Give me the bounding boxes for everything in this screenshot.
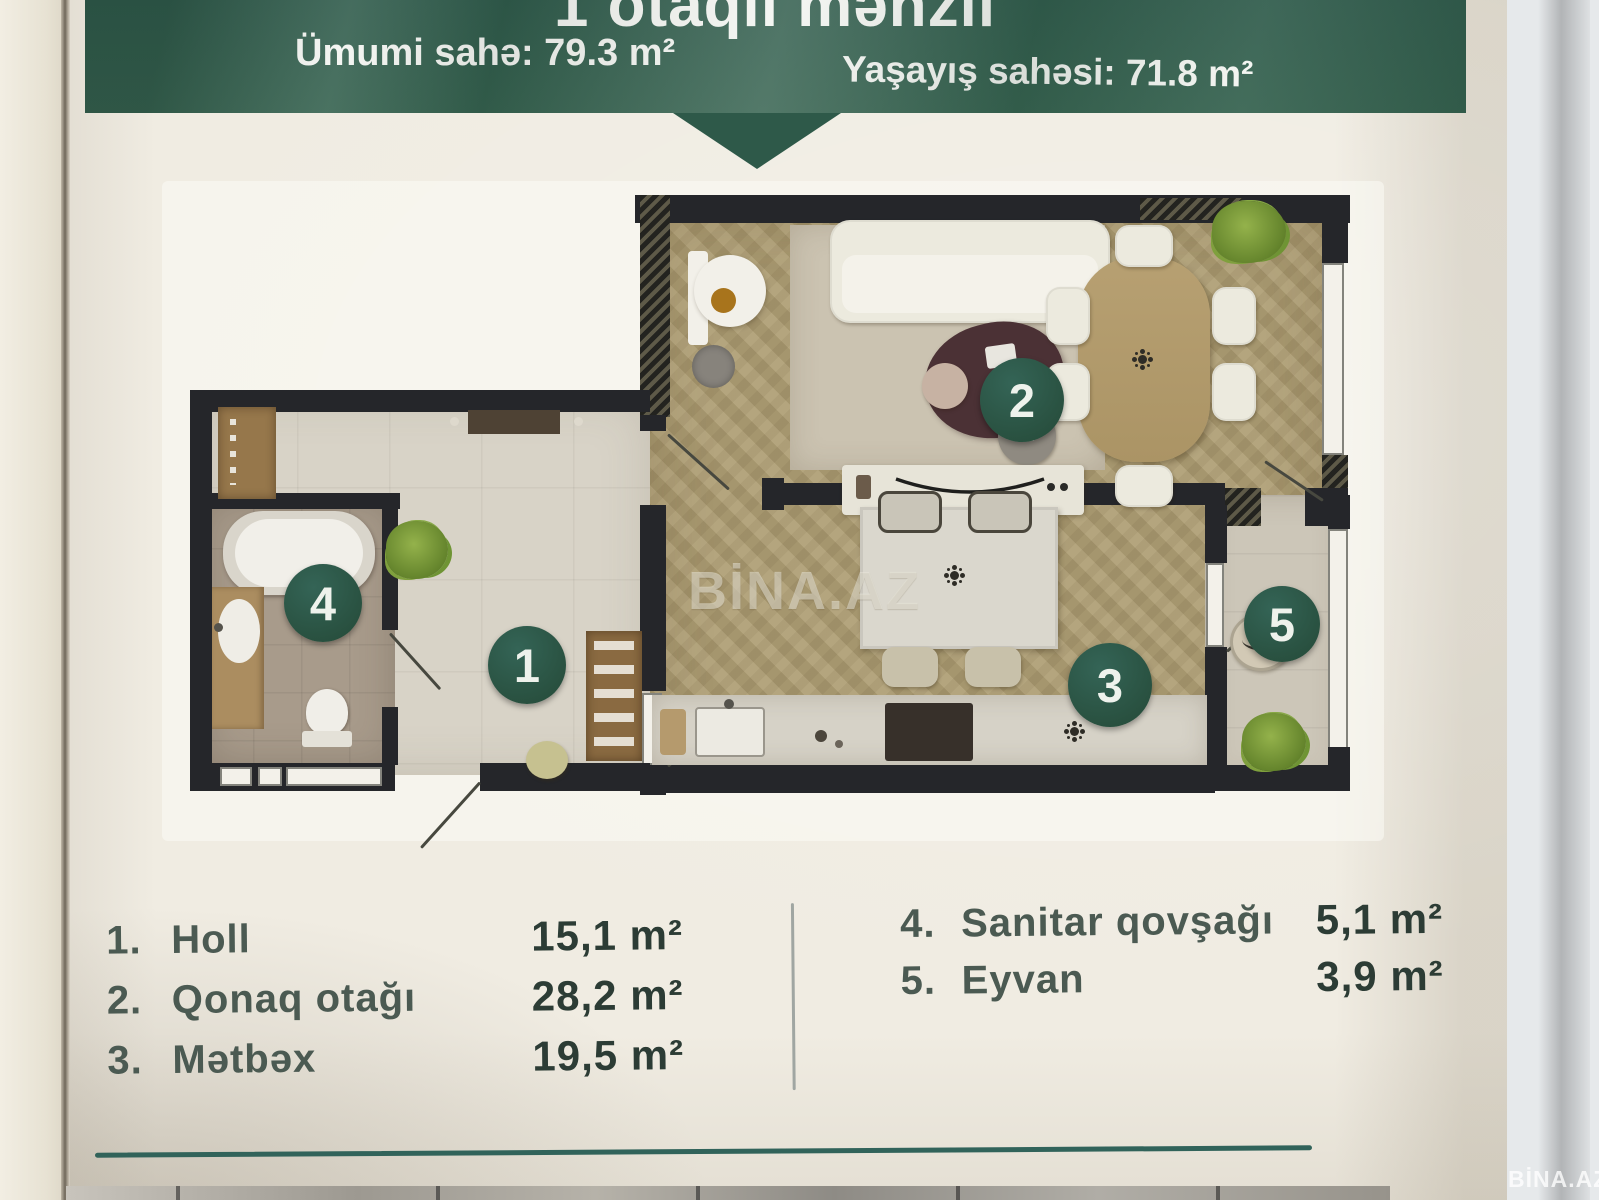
legend-room-area: 15,1 m² xyxy=(531,911,683,960)
legend-number: 2. xyxy=(107,978,143,1023)
bottom-photo-strip xyxy=(66,1186,1390,1200)
legend-room-area: 5,1 m² xyxy=(1295,895,1443,944)
photographed-floorplan-page: { "banner": { "title": "1 otaqlı mənzil"… xyxy=(0,0,1599,1200)
legend-room-name: Sanitar qovşağı xyxy=(961,898,1274,946)
legend-row: 3. Mətbəx 19,5 m² xyxy=(107,1031,867,1092)
legend-number: 4. xyxy=(900,902,936,947)
legend-number: 5. xyxy=(900,959,936,1004)
legend-room-area: 19,5 m² xyxy=(532,1031,684,1080)
legend-room-name: Holl xyxy=(171,917,251,963)
legend-room-name: Eyvan xyxy=(961,957,1084,1003)
legend-row: 5. Eyvan 3,9 m² xyxy=(900,952,1599,1013)
legend-room-area: 28,2 m² xyxy=(532,971,684,1020)
room-legend: 1. Holl 15,1 m² 2. Qonaq otağı 28,2 m² 3… xyxy=(0,0,1599,1200)
legend-row: 4. Sanitar qovşağı 5,1 m² xyxy=(900,895,1599,956)
legend-room-name: Qonaq otağı xyxy=(172,976,417,1023)
legend-row: 1. Holl 15,1 m² xyxy=(106,911,866,972)
legend-room-name: Mətbəx xyxy=(172,1037,316,1083)
bina-az-corner-watermark: BİNA.AZ xyxy=(1508,1166,1599,1193)
legend-number: 1. xyxy=(106,918,142,963)
legend-row: 2. Qonaq otağı 28,2 m² xyxy=(107,971,867,1032)
legend-number: 3. xyxy=(107,1038,143,1083)
legend-room-area: 3,9 m² xyxy=(1295,952,1443,1001)
